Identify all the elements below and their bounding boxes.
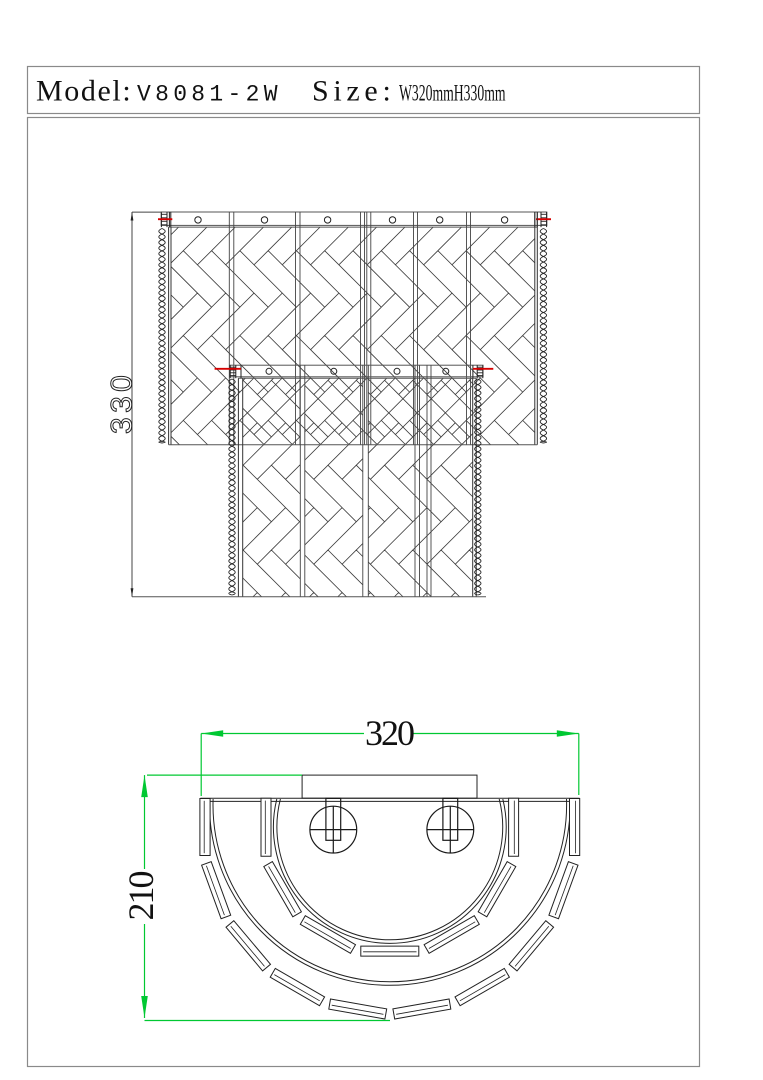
svg-text:210: 210 <box>121 872 161 921</box>
svg-text:Model:: Model: <box>36 75 132 108</box>
svg-text:320: 320 <box>365 713 414 753</box>
svg-text:V8081-2W: V8081-2W <box>137 82 282 108</box>
svg-text:Size:: Size: <box>312 75 396 108</box>
svg-text:330: 330 <box>106 371 139 434</box>
svg-text:W320mmH330mm: W320mmH330mm <box>399 81 506 107</box>
